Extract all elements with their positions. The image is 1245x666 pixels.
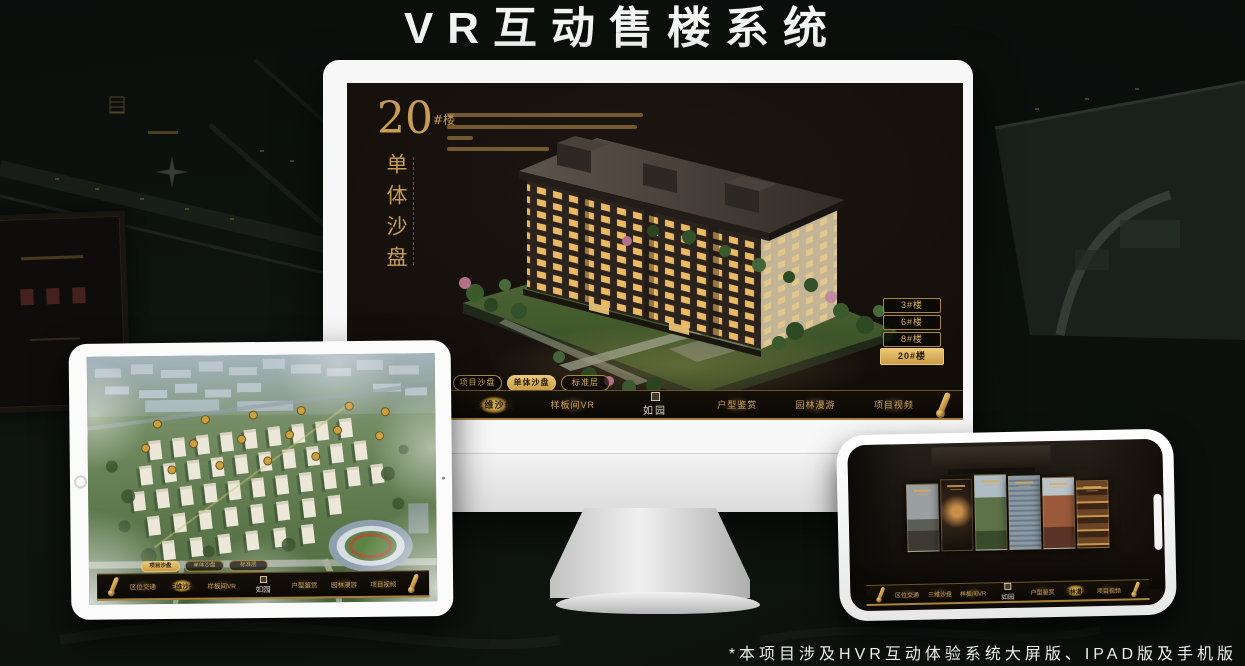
monitor-stand-neck: [550, 508, 750, 598]
scroll-icon[interactable]: [405, 574, 420, 594]
scene-panel-red-wall[interactable]: [1042, 477, 1076, 550]
nav-item-garden-roam[interactable]: 园林漫游: [1059, 586, 1092, 596]
poster-canvas: VR互动售楼系统 20 #楼 单体沙盘: [0, 0, 1245, 666]
phone: 区位交通 三维沙盘 样板间VR 如园 户型鉴赏 园林漫游 项目视频: [836, 428, 1177, 621]
plaque-seal: [20, 289, 34, 305]
building-3d-model[interactable]: [439, 135, 909, 415]
nav-item-unit-appreciation[interactable]: 户型鉴赏: [698, 398, 776, 411]
tab-standard-floor[interactable]: 标准层: [561, 375, 610, 391]
nav-item-3d-sand-table[interactable]: 三维沙盘: [923, 589, 956, 599]
tab-single-sand-table[interactable]: 单体沙盘: [507, 375, 556, 391]
nav-item-3d-sand-table[interactable]: 三维沙盘: [162, 581, 202, 591]
footnote: *本项目涉及HVR互动体验系统大屏版、IPAD版及手机版: [729, 640, 1237, 664]
tab-project-sand-table[interactable]: 项目沙盘: [141, 561, 180, 572]
plaque-seal: [72, 287, 86, 303]
phone-screen: 区位交通 三维沙盘 样板间VR 如园 户型鉴赏 园林漫游 项目视频: [847, 439, 1165, 612]
description-text-line: [447, 113, 643, 117]
nav-item-project-video[interactable]: 项目视频: [1092, 585, 1125, 595]
tab-single-sand-table[interactable]: 单体沙盘: [185, 560, 224, 571]
plaque-seal: [46, 288, 60, 304]
brand-logo-icon: [260, 575, 267, 582]
nav-item-unit-appreciation[interactable]: 户型鉴赏: [1026, 586, 1059, 596]
monitor-stand-base: [556, 592, 760, 614]
description-text-line: [447, 125, 637, 129]
brand-logo-icon: [1004, 583, 1011, 590]
scroll-icon[interactable]: [106, 577, 121, 597]
brand-logo[interactable]: 如园: [241, 575, 285, 594]
scroll-icon[interactable]: [933, 392, 953, 418]
scene-panel-facade[interactable]: [1008, 475, 1042, 550]
nav-item-model-room-vr[interactable]: 样板间VR: [202, 580, 242, 590]
camera-dot: [442, 477, 445, 480]
plaque-sub-row: [30, 337, 80, 341]
building-button-6[interactable]: 6#楼: [883, 315, 941, 330]
tablet-nav-bar: 区位交通 三维沙盘 样板间VR 如园 户型鉴赏 园林漫游 项目视频: [97, 570, 429, 600]
nav-item-garden-roam[interactable]: 园林漫游: [776, 398, 854, 411]
plaque-gold-row: [21, 255, 83, 260]
block-subtitle: 单体沙盘: [381, 153, 411, 277]
nav-item-unit-appreciation[interactable]: 户型鉴赏: [285, 579, 325, 589]
building-button-20[interactable]: 20#楼: [880, 348, 944, 365]
scene-roof-beam: [931, 445, 1050, 469]
home-button[interactable]: [74, 475, 87, 488]
nav-item-model-room-vr[interactable]: 样板间VR: [957, 588, 990, 598]
block-number-title: 20: [377, 97, 433, 141]
nav-item-location-traffic[interactable]: 区位交通: [890, 589, 923, 599]
scene-panel-interior[interactable]: [940, 479, 974, 552]
nav-item-location-traffic[interactable]: 区位交通: [123, 581, 163, 591]
scene-panel-cabinet[interactable]: [1076, 480, 1109, 549]
building-button-8[interactable]: 8#楼: [883, 332, 941, 347]
nav-item-model-room-vr[interactable]: 样板间VR: [534, 398, 612, 411]
nav-item-3d-sand-table[interactable]: 三维沙盘: [455, 398, 533, 411]
tablet: 项目沙盘 单体沙盘 标准层 区位交通 三维沙盘 样板间VR 如园 户型鉴赏 园林…: [69, 340, 454, 620]
brand-logo[interactable]: 如园: [612, 392, 698, 417]
scroll-icon[interactable]: [1129, 581, 1141, 597]
nav-item-garden-roam[interactable]: 园林漫游: [324, 579, 364, 589]
scene-panel-courtyard[interactable]: [906, 483, 939, 552]
subtitle-divider: [413, 157, 414, 265]
nav-item-project-video[interactable]: 项目视频: [364, 579, 404, 589]
brand-logo[interactable]: 如园: [989, 583, 1026, 602]
page-title: VR互动售楼系统: [0, 0, 1245, 58]
scene-panel-garden[interactable]: [974, 474, 1008, 551]
tablet-screen: 项目沙盘 单体沙盘 标准层 区位交通 三维沙盘 样板间VR 如园 户型鉴赏 园林…: [87, 353, 438, 605]
building-button-3[interactable]: 3#楼: [883, 298, 941, 313]
nav-item-project-video[interactable]: 项目视频: [855, 398, 933, 411]
scroll-icon[interactable]: [874, 587, 886, 603]
tab-standard-floor[interactable]: 标准层: [229, 560, 268, 571]
tab-project-sand-table[interactable]: 项目沙盘: [453, 375, 502, 391]
phone-notch: [1153, 494, 1162, 550]
brand-logo-icon: [651, 392, 660, 401]
tablet-view-tabs: 项目沙盘 单体沙盘 标准层: [141, 560, 268, 572]
